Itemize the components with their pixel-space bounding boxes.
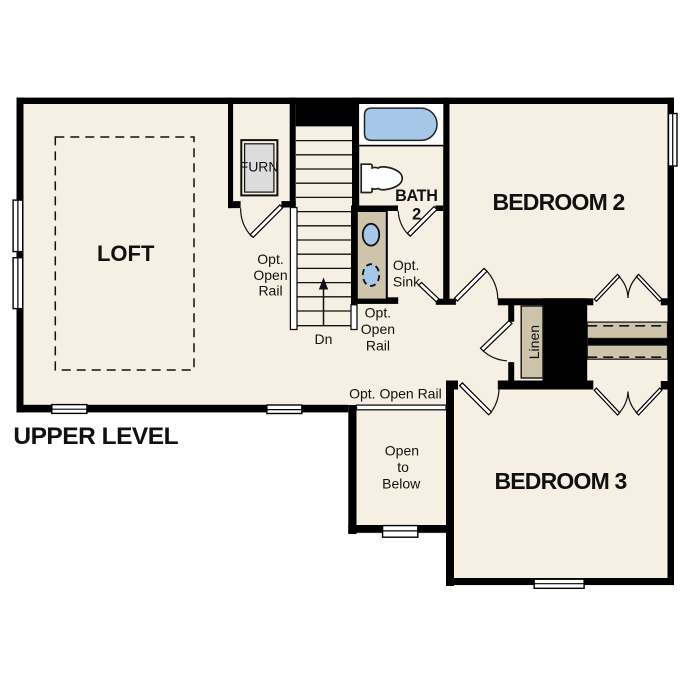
svg-text:Dn: Dn	[315, 331, 333, 347]
svg-text:FURN: FURN	[240, 159, 279, 175]
svg-text:Opt.: Opt.	[393, 257, 419, 273]
svg-text:LOFT: LOFT	[97, 241, 155, 266]
svg-text:2: 2	[412, 205, 421, 223]
svg-text:Sink: Sink	[393, 273, 421, 289]
svg-text:Open: Open	[361, 321, 395, 337]
svg-text:Rail: Rail	[366, 337, 390, 353]
svg-text:to: to	[397, 459, 409, 475]
svg-text:Open: Open	[385, 443, 419, 459]
svg-text:Rail: Rail	[258, 282, 282, 298]
svg-text:BEDROOM 3: BEDROOM 3	[494, 468, 626, 494]
svg-text:Opt.: Opt.	[365, 305, 391, 321]
svg-text:BEDROOM 2: BEDROOM 2	[492, 189, 624, 215]
svg-text:UPPER LEVEL: UPPER LEVEL	[13, 423, 178, 450]
svg-text:Linen: Linen	[526, 325, 542, 359]
svg-text:Below: Below	[382, 476, 421, 492]
svg-text:BATH: BATH	[395, 187, 438, 205]
svg-text:Opt.: Opt.	[257, 251, 283, 267]
svg-text:Opt. Open Rail: Opt. Open Rail	[349, 386, 442, 402]
svg-text:Open: Open	[253, 267, 287, 283]
